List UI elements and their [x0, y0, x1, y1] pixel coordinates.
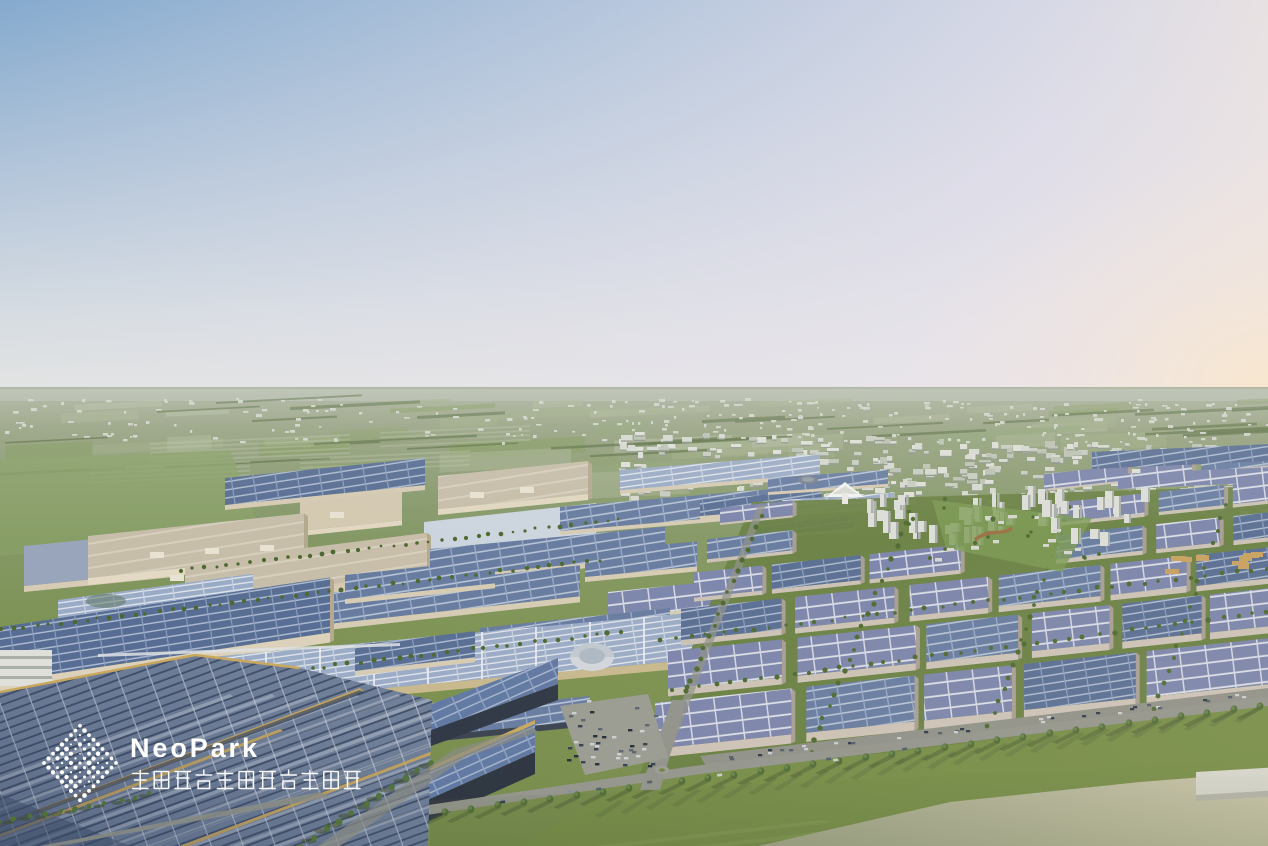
svg-text:NeoPark: NeoPark — [130, 733, 260, 763]
